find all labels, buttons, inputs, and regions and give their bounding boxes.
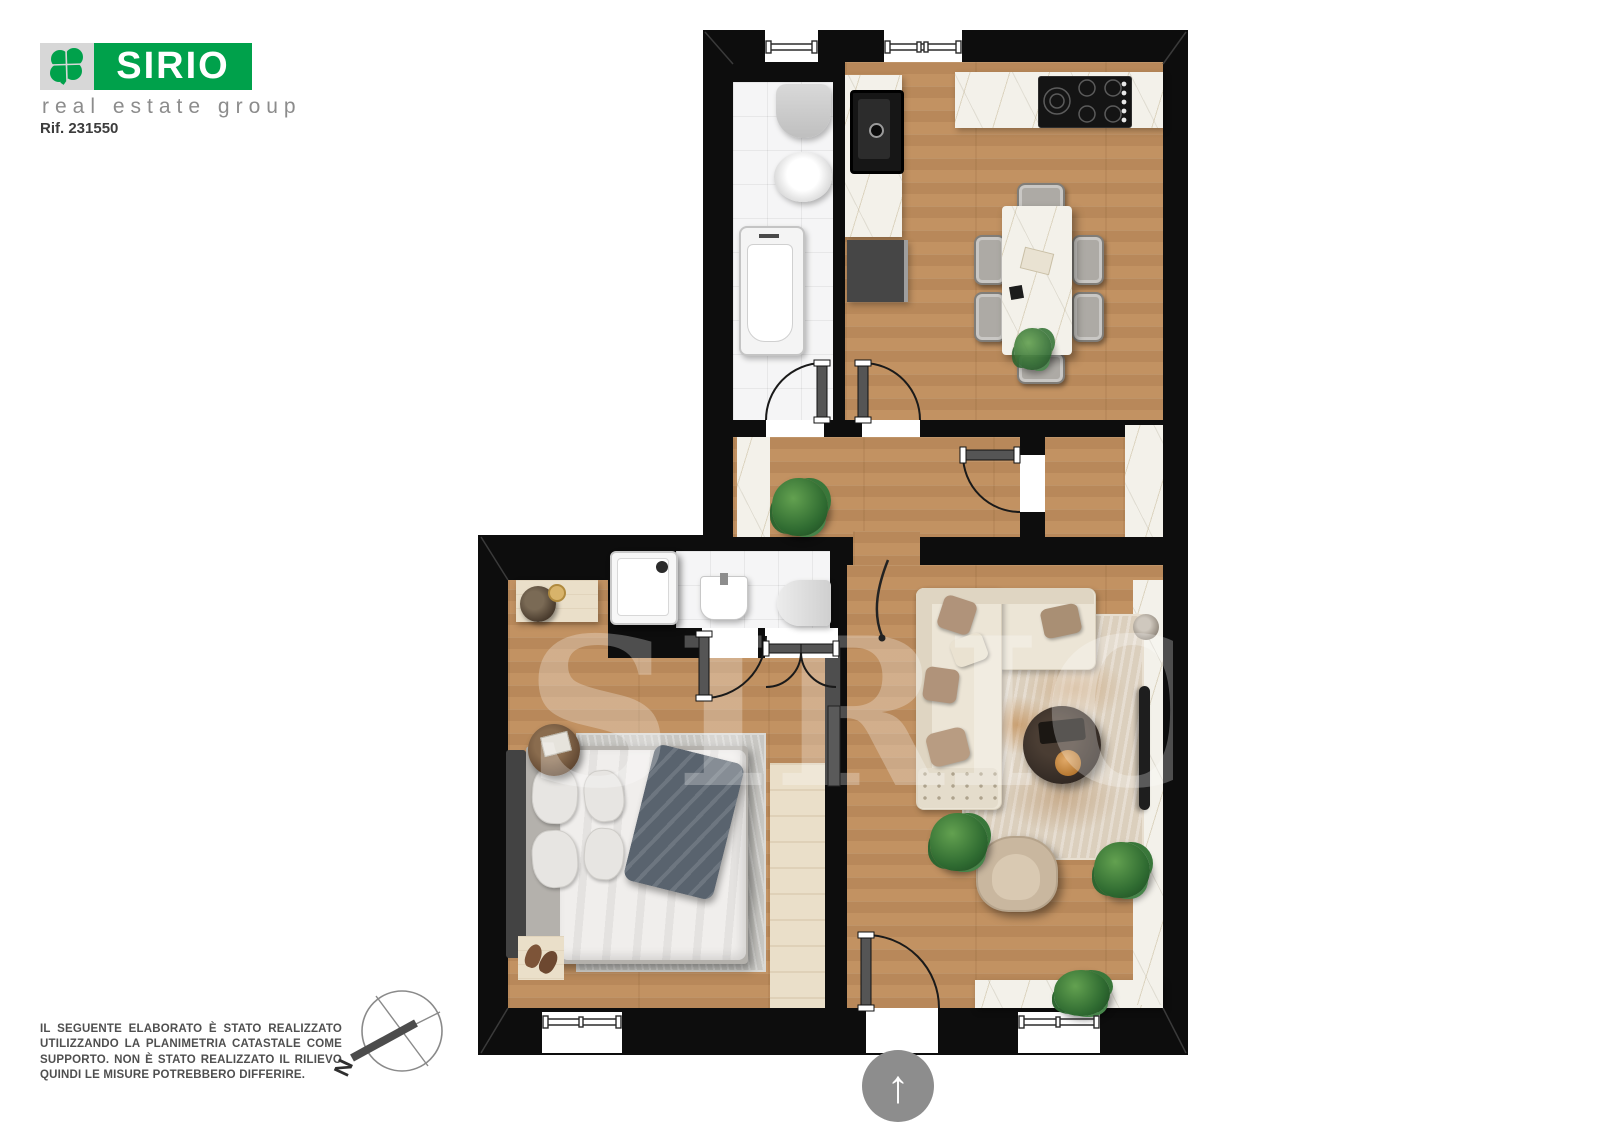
bathtub-basin — [747, 244, 793, 342]
brand-name: SIRIO — [116, 45, 229, 88]
bathroom1-kitchen-wall — [833, 30, 845, 422]
kitchen-cabinet — [847, 240, 908, 302]
cooktop — [1038, 76, 1132, 128]
table-book — [1020, 247, 1054, 276]
dining-chair-right-1 — [1072, 235, 1104, 285]
disclaimer-text: IL SEGUENTE ELABORATO È STATO REALIZZATO… — [40, 1022, 342, 1084]
window-bedroom — [542, 1012, 622, 1053]
clover-icon — [40, 43, 94, 90]
hallway-plant — [772, 478, 828, 536]
dining-chair-right-2 — [1072, 292, 1104, 342]
hall-right-marble — [1125, 425, 1163, 537]
logo-clover-box — [40, 43, 94, 90]
bed-headboard — [506, 750, 526, 958]
bedroom-top-wall-patch — [508, 565, 608, 580]
compass: N — [330, 960, 470, 1090]
kitchen-sink — [850, 90, 904, 174]
reference-number: Rif. 231550 — [40, 120, 118, 137]
hall-passage-floor — [853, 531, 920, 565]
kitchen-sink-drain — [869, 123, 884, 138]
window-living — [1018, 1012, 1100, 1053]
brand-tagline: real estate group — [42, 95, 302, 119]
armchair — [976, 836, 1058, 912]
toilet-1 — [776, 84, 831, 138]
bathtub-faucet — [759, 234, 779, 238]
dresser-candle — [548, 584, 566, 602]
sink-2-faucet — [720, 573, 728, 585]
bathroom1-door-opening — [766, 420, 824, 437]
table-decor — [1009, 285, 1024, 300]
floorplan-page: SIRIO real estate group Rif. 231550 IL S… — [0, 0, 1600, 1131]
armchair-seat — [992, 854, 1040, 900]
dining-table — [1002, 206, 1072, 355]
entrance-arrow-icon: ↑ — [887, 1059, 910, 1113]
living-plant-2 — [1094, 842, 1150, 898]
hall-entry-niche — [737, 437, 770, 537]
window-kitchen — [884, 30, 962, 62]
kitchen-door-opening — [862, 420, 920, 437]
watermark-text: SIRIO — [525, 612, 1173, 824]
shower-drain — [656, 561, 668, 573]
table-plant — [1014, 328, 1052, 370]
entrance-arrow-badge: ↑ — [862, 1050, 934, 1122]
logo-wordmark: SIRIO — [94, 43, 252, 90]
sink-1 — [774, 152, 832, 202]
bathtub — [739, 226, 805, 356]
window-bathroom1 — [765, 30, 818, 62]
entrance-door-opening — [866, 1008, 938, 1053]
hall-door-opening — [1020, 455, 1045, 512]
sill-plant — [1054, 970, 1110, 1016]
